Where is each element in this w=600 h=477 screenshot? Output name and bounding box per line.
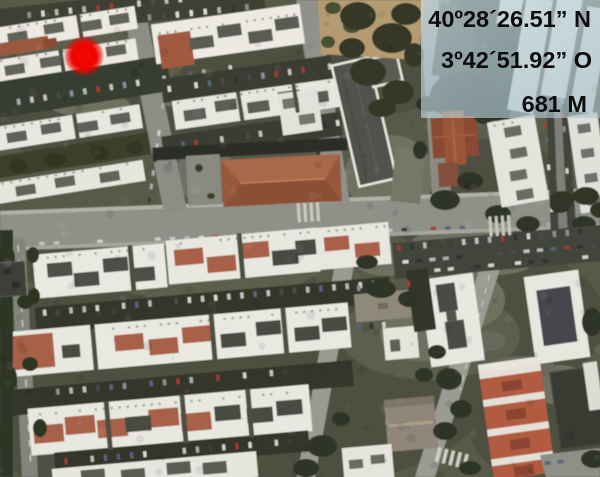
svg-text:3º42´51.92” O: 3º42´51.92” O [441, 47, 592, 73]
svg-text:40º28´26.51” N: 40º28´26.51” N [428, 6, 591, 32]
svg-text:681 M: 681 M [522, 91, 587, 117]
